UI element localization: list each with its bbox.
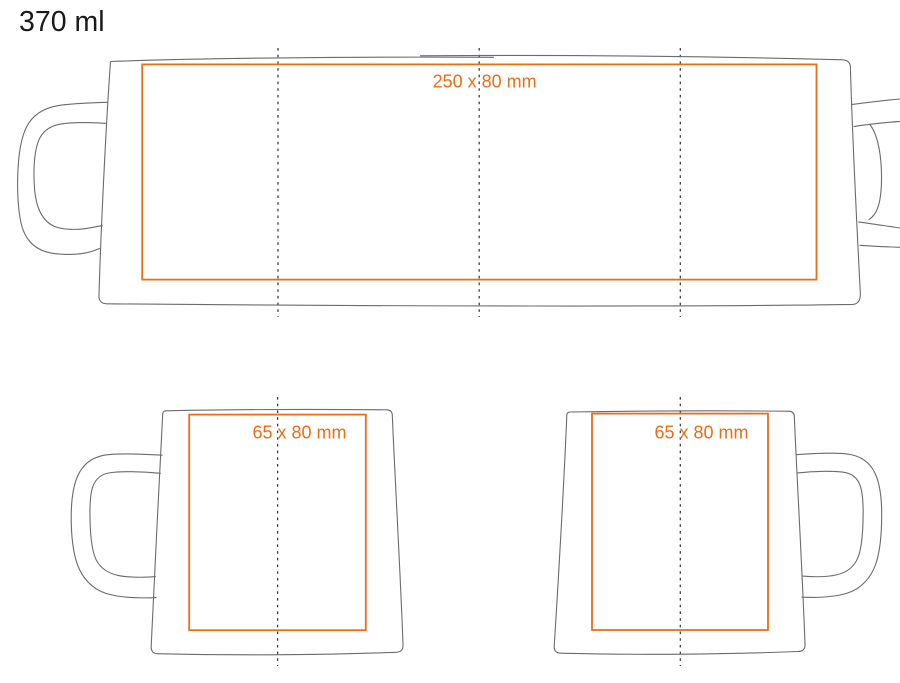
- svg-text:250 x 80 mm: 250 x 80 mm: [433, 72, 537, 92]
- svg-text:65 x 80 mm: 65 x 80 mm: [654, 422, 748, 442]
- svg-text:65 x 80 mm: 65 x 80 mm: [252, 422, 346, 442]
- svg-text:370 ml: 370 ml: [19, 6, 105, 38]
